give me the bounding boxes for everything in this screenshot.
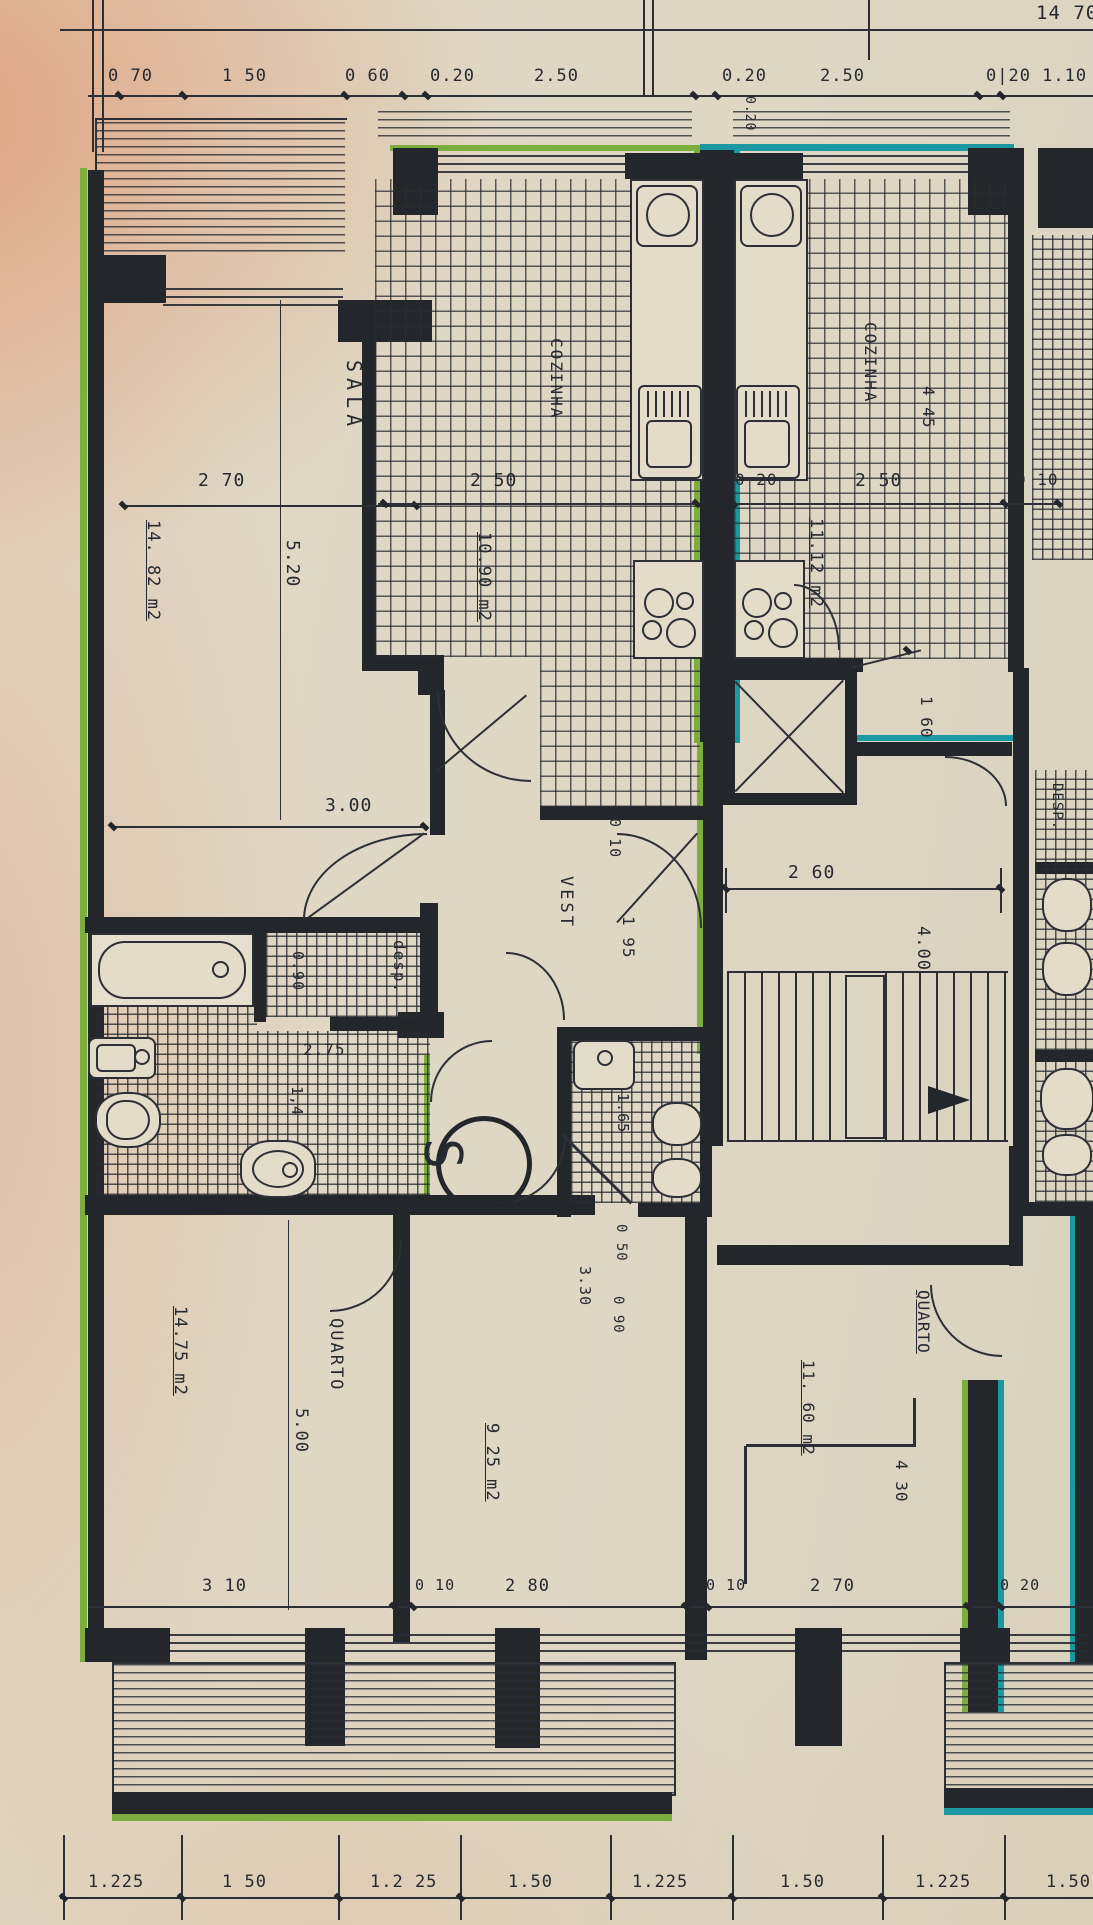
extension-line bbox=[652, 0, 654, 96]
dimension-label: 4 30 bbox=[1071, 1460, 1090, 1503]
extension-line bbox=[92, 0, 94, 152]
area-label: 10.90 m2 bbox=[474, 532, 494, 622]
dimension-label: 2 70 bbox=[810, 1576, 855, 1596]
room-label-quarto: QUARTO bbox=[914, 1290, 933, 1354]
wall bbox=[85, 1628, 170, 1662]
wall bbox=[717, 1245, 1009, 1265]
dimension-label: 0.90 bbox=[289, 951, 307, 991]
door-arc bbox=[330, 1240, 402, 1312]
extension-line bbox=[732, 1835, 734, 1920]
area-label: 14. 82 m2 bbox=[143, 520, 163, 621]
dimension-line bbox=[60, 29, 1093, 31]
wall bbox=[1035, 1050, 1093, 1062]
dimension-label: 1.50 bbox=[1046, 1872, 1091, 1892]
dimension-label: 0 90 bbox=[610, 1296, 626, 1334]
wall bbox=[685, 1210, 707, 1660]
wall bbox=[1013, 668, 1029, 1215]
dimension-label: 0 60 bbox=[345, 66, 390, 86]
wall bbox=[700, 150, 734, 742]
extension-line bbox=[280, 300, 281, 820]
cooktop-burner bbox=[644, 588, 674, 618]
dimension-label: 0 10 bbox=[1016, 470, 1059, 489]
wall bbox=[1008, 148, 1024, 672]
cooktop-burner bbox=[642, 620, 662, 640]
dimension-label: 3.00 bbox=[325, 795, 372, 816]
cooktop-burner bbox=[744, 620, 764, 640]
dimension-label: 1 60 bbox=[917, 696, 936, 739]
handrail bbox=[845, 975, 885, 1139]
window-sill bbox=[540, 1634, 795, 1656]
balcony-slab bbox=[112, 1792, 672, 1814]
dimension-label: 0.20 bbox=[722, 66, 767, 86]
dimension-label: 14 70 bbox=[1036, 2, 1093, 24]
dimension-label: 4 30 bbox=[892, 1460, 911, 1503]
room-label-quarto: QUARTO bbox=[326, 1318, 346, 1391]
dimension-label: 0 20 bbox=[1000, 1576, 1040, 1594]
cooktop-burner bbox=[676, 592, 694, 610]
window-sill bbox=[438, 155, 628, 175]
tick bbox=[115, 91, 125, 101]
wall bbox=[795, 1628, 842, 1746]
stairs bbox=[885, 973, 1008, 1140]
bidet bbox=[1042, 942, 1092, 996]
dimension-label: 2.50 bbox=[820, 66, 865, 86]
green-highlight bbox=[112, 1814, 672, 1821]
dimension-label: 3 10 bbox=[202, 1576, 247, 1596]
section-marker-letter: S bbox=[416, 1138, 468, 1170]
tick bbox=[878, 1893, 888, 1903]
floor-plan-photo: 14 70 0 70 1 50 0 60 0.20 2.50 0.20 2.50… bbox=[0, 0, 1093, 1925]
neighbour-tile-floor bbox=[1032, 235, 1093, 560]
extension-line bbox=[460, 1835, 462, 1920]
extension-line bbox=[1004, 1835, 1006, 1920]
terrace-edge bbox=[95, 118, 347, 120]
wall bbox=[1085, 1628, 1093, 1662]
dimension-line bbox=[88, 1606, 1093, 1608]
window-sill bbox=[1010, 1634, 1085, 1656]
wall bbox=[557, 1203, 569, 1217]
room-label-desp: DESP. bbox=[1049, 783, 1065, 830]
stairs bbox=[727, 973, 845, 1140]
door-arc bbox=[617, 833, 702, 928]
toilet bbox=[1042, 878, 1092, 932]
tick bbox=[59, 1893, 69, 1903]
window-sill bbox=[345, 1634, 495, 1656]
dimension-label: 4 45 bbox=[919, 386, 938, 429]
wall bbox=[557, 1027, 712, 1041]
dimension-label: 0 70 bbox=[108, 66, 153, 86]
dimension-line bbox=[88, 95, 1093, 97]
extension-line bbox=[610, 1835, 612, 1920]
oven-door bbox=[744, 420, 790, 468]
dimension-label: 2.75 bbox=[303, 1040, 346, 1059]
window-sill bbox=[803, 155, 968, 175]
dimension-label: 2 70 bbox=[198, 470, 245, 491]
dimension-line bbox=[733, 503, 1063, 505]
door-arc bbox=[430, 1040, 492, 1102]
room-label-cozinha: COZINHA bbox=[861, 322, 880, 403]
washbasin-drain bbox=[134, 1049, 150, 1065]
dimension-label: 3.30 bbox=[576, 1266, 594, 1306]
wall bbox=[88, 170, 104, 1660]
tick bbox=[974, 91, 984, 101]
stair-direction-arrow bbox=[928, 1086, 970, 1114]
dimension-label: 1.225 bbox=[915, 1872, 971, 1892]
kitchen-tile-floor bbox=[540, 657, 700, 807]
terrace-hatch bbox=[97, 122, 345, 258]
tick bbox=[422, 91, 432, 101]
dimension-line bbox=[112, 826, 428, 828]
sink-basin bbox=[646, 193, 690, 237]
leader-line bbox=[913, 1398, 916, 1446]
teal-highlight bbox=[700, 144, 1014, 151]
tick bbox=[399, 91, 409, 101]
dimension-line bbox=[378, 503, 700, 505]
stair-edge bbox=[727, 1140, 1008, 1142]
tick bbox=[996, 884, 1006, 894]
dimension-label: 2 60 bbox=[788, 862, 835, 883]
balcony-hatch bbox=[112, 1662, 676, 1796]
t极ick bbox=[341, 91, 351, 101]
tick bbox=[997, 91, 1007, 101]
wall bbox=[960, 1628, 1010, 1662]
dimension-label: 0 50 bbox=[613, 1224, 629, 1262]
dimension-label: 1.50 bbox=[780, 1872, 825, 1892]
window-sill bbox=[842, 1634, 960, 1656]
bidet-drain bbox=[282, 1162, 298, 1178]
wall bbox=[1075, 1215, 1093, 1662]
room-label-cozinha: COZINHA bbox=[547, 338, 566, 419]
tick bbox=[712, 91, 722, 101]
teal-highlight bbox=[944, 1808, 1093, 1815]
area-label: 14.75 m2 bbox=[170, 1306, 190, 1396]
dimension-label: 4.00 bbox=[913, 926, 933, 971]
window-sill bbox=[170, 1634, 305, 1656]
area-label: 9 25 m2 bbox=[482, 1423, 502, 1502]
tick bbox=[108, 822, 118, 832]
wall bbox=[625, 153, 703, 179]
extension-line bbox=[288, 1220, 289, 1610]
door-arc bbox=[437, 692, 531, 782]
wall bbox=[418, 655, 444, 695]
dimension-label: 0 10 bbox=[415, 1576, 455, 1594]
dimension-label: 0.20 bbox=[430, 66, 475, 86]
tick bbox=[420, 822, 430, 832]
dimension-label: 1.2 25 bbox=[370, 1872, 437, 1892]
bathtub-drain bbox=[212, 961, 229, 978]
area-label: 11.12 m2 bbox=[806, 518, 826, 608]
dimension-label: 0|20 1.10 bbox=[986, 66, 1087, 86]
balcony-hatch bbox=[944, 1662, 1093, 1792]
balcony-slab bbox=[944, 1788, 1093, 1808]
extension-line bbox=[868, 0, 870, 60]
tick bbox=[456, 1893, 466, 1903]
section-marker: S bbox=[436, 1116, 532, 1212]
bidet bbox=[1042, 1134, 1092, 1176]
leader-line bbox=[744, 1446, 747, 1584]
window-sill bbox=[163, 288, 343, 312]
room-label-vest: VEST bbox=[556, 876, 576, 929]
dimension-label: 5.20 bbox=[282, 540, 303, 587]
green-highlight bbox=[80, 168, 87, 1662]
extension-line bbox=[882, 1835, 884, 1920]
wall bbox=[557, 1027, 571, 1217]
toilet-bowl bbox=[106, 1100, 150, 1140]
cooktop-burner bbox=[742, 588, 772, 618]
dimension-label: 0 10 bbox=[606, 818, 624, 858]
dimension-label: 2.50 bbox=[534, 66, 579, 86]
dimension-line bbox=[123, 505, 419, 507]
tick bbox=[177, 1893, 187, 1903]
wall bbox=[1020, 1202, 1093, 1216]
tick bbox=[690, 91, 700, 101]
dimension-label: 1,4 bbox=[288, 1086, 306, 1116]
dimension-label: 2 50 bbox=[855, 470, 902, 491]
dimension-label: 1 50 bbox=[222, 66, 267, 86]
bidet bbox=[652, 1158, 702, 1198]
dimension-label: 1 50 bbox=[222, 1872, 267, 1892]
oven-door bbox=[646, 420, 692, 468]
wall bbox=[88, 255, 166, 303]
tick bbox=[728, 1893, 738, 1903]
dimension-label: 2 50 bbox=[470, 470, 517, 491]
sink-basin bbox=[750, 193, 794, 237]
leader-line bbox=[746, 1444, 916, 1447]
cooktop-burner bbox=[666, 618, 696, 648]
door-arc bbox=[930, 1285, 1002, 1357]
terrace-hatch bbox=[733, 111, 1010, 143]
area-label: 11. 60 m2 bbox=[799, 1360, 818, 1456]
room-label-desp: desp. bbox=[390, 940, 409, 993]
tick bbox=[1000, 1893, 1010, 1903]
toilet bbox=[1040, 1068, 1093, 1130]
dimension-label: 1.50 bbox=[508, 1872, 553, 1892]
tick bbox=[119, 501, 129, 511]
dimension-label: 1.65 bbox=[614, 1093, 632, 1133]
cooktop-burner bbox=[774, 592, 792, 610]
tick bbox=[334, 1893, 344, 1903]
washbasin-inner bbox=[96, 1044, 136, 1072]
door-arc bbox=[945, 756, 1007, 806]
wall bbox=[1038, 148, 1093, 228]
dimension-label: 2 80 bbox=[505, 1576, 550, 1596]
toilet bbox=[652, 1102, 702, 1146]
dimension-label: 0 20 bbox=[735, 470, 778, 489]
dimension-label: 1.225 bbox=[632, 1872, 688, 1892]
dimension-line bbox=[60, 1897, 1093, 1899]
extension-line bbox=[643, 0, 645, 96]
room-label-sala: SALA bbox=[342, 360, 366, 432]
extension-line bbox=[181, 1835, 183, 1920]
tick bbox=[179, 91, 189, 101]
wall bbox=[857, 742, 1012, 756]
wall bbox=[733, 153, 803, 179]
dimension-line bbox=[725, 888, 1000, 890]
dimension-label: 1 95 bbox=[619, 916, 638, 959]
dimension-label: 1.225 bbox=[88, 1872, 144, 1892]
washbasin-drain bbox=[597, 1050, 613, 1066]
tick bbox=[606, 1893, 616, 1903]
terrace-hatch bbox=[378, 111, 692, 143]
extension-line bbox=[63, 1835, 65, 1920]
dimension-label: 5.00 bbox=[291, 1408, 311, 1453]
door-arc bbox=[506, 952, 565, 1020]
dimension-label: 0 10 bbox=[706, 1576, 746, 1594]
wall bbox=[420, 903, 438, 1025]
extension-line bbox=[338, 1835, 340, 1920]
